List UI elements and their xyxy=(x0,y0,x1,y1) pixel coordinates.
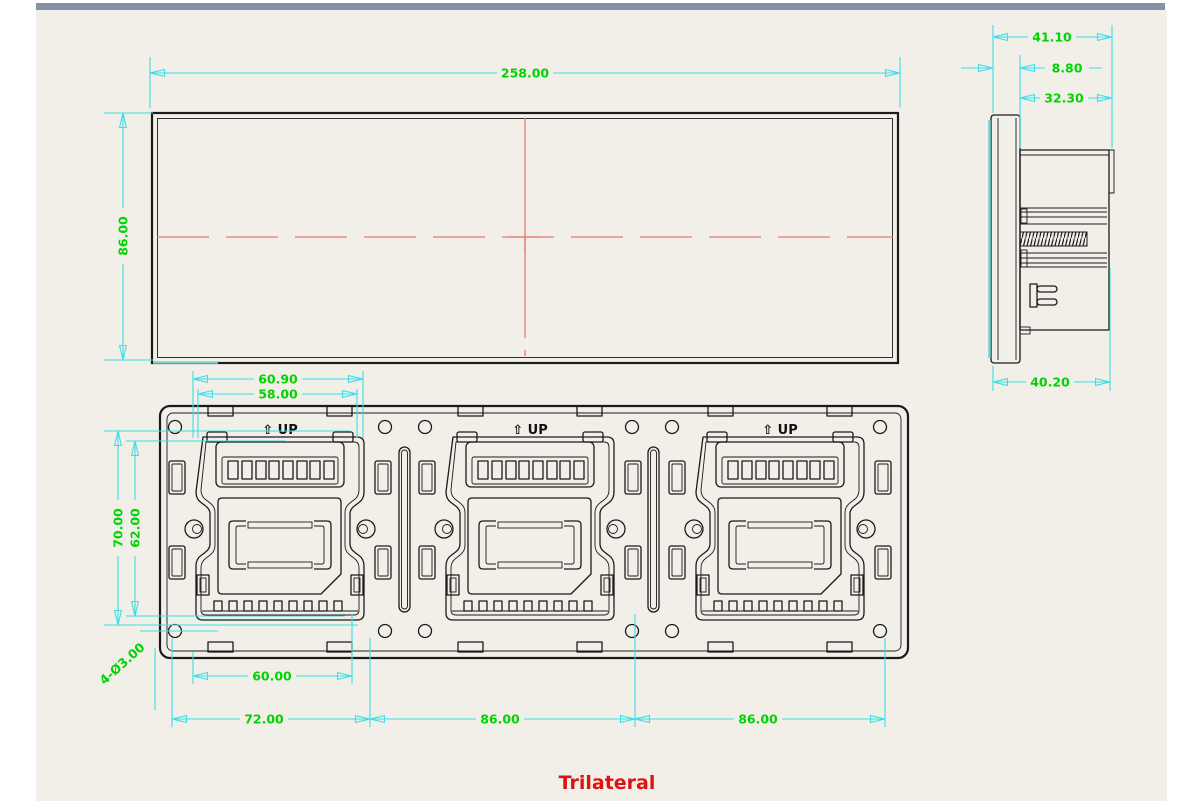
dimensions: 258.00 86.00 41.10 xyxy=(96,25,1112,727)
svg-text:86.00: 86.00 xyxy=(116,216,131,256)
svg-text:60.00: 60.00 xyxy=(252,669,292,684)
svg-text:70.00: 70.00 xyxy=(111,508,126,548)
svg-text:58.00: 58.00 xyxy=(258,387,298,402)
side-view xyxy=(990,115,1115,363)
dim-front-height: 86.00 xyxy=(104,113,153,360)
svg-text:8.80: 8.80 xyxy=(1052,61,1083,76)
mounting-holes xyxy=(169,421,887,638)
module-3 xyxy=(669,423,891,620)
cad-drawing-canvas: ⇧ UP xyxy=(0,0,1200,801)
svg-text:4-Ø3.00: 4-Ø3.00 xyxy=(96,639,147,687)
drawing-page: ⇧ UP xyxy=(0,0,1200,801)
threaded-screw xyxy=(1020,232,1087,246)
dim-side-faceplate-thickness: 8.80 xyxy=(961,61,1102,76)
dim-frame-inner-height: 62.00 xyxy=(126,441,345,616)
dim-front-width: 258.00 xyxy=(150,57,900,108)
module-1 xyxy=(169,423,391,620)
module-2 xyxy=(419,423,641,620)
dim-side-recess-depth: 32.30 xyxy=(1020,91,1112,106)
svg-text:86.00: 86.00 xyxy=(738,712,778,727)
svg-text:60.90: 60.90 xyxy=(258,372,298,387)
dim-mounting-holes-note: 4-Ø3.00 xyxy=(96,631,218,710)
svg-text:72.00: 72.00 xyxy=(244,712,284,727)
svg-text:40.20: 40.20 xyxy=(1030,375,1070,390)
back-view xyxy=(160,406,908,658)
centerlines xyxy=(157,118,893,356)
svg-text:62.00: 62.00 xyxy=(128,508,143,548)
svg-text:258.00: 258.00 xyxy=(501,66,550,81)
svg-text:41.10: 41.10 xyxy=(1032,30,1072,45)
prong-fork xyxy=(1030,284,1057,307)
svg-text:86.00: 86.00 xyxy=(480,712,520,727)
dim-module-pitch-1: 86.00 xyxy=(370,614,635,727)
drawing-title: Trilateral xyxy=(559,772,656,794)
front-view xyxy=(152,113,898,363)
dim-side-total-depth: 41.10 xyxy=(993,25,1112,148)
body-detail-lines xyxy=(1020,208,1107,334)
svg-text:32.30: 32.30 xyxy=(1044,91,1084,106)
